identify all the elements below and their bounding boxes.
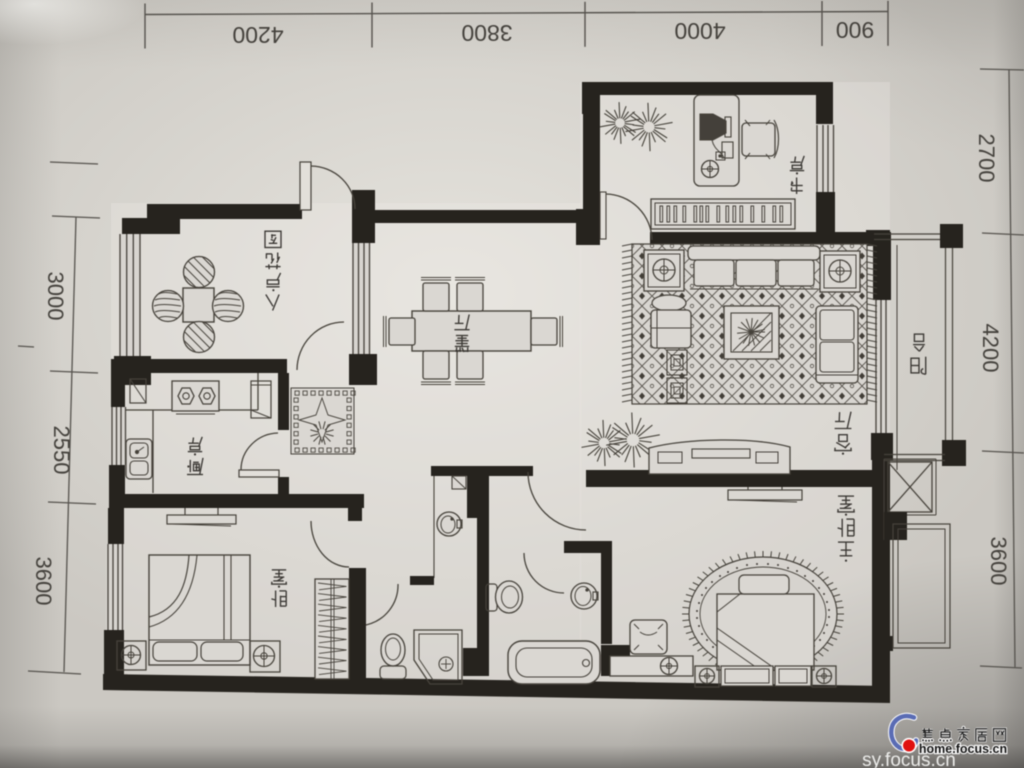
svg-text:sy.focus.cn: sy.focus.cn	[862, 750, 956, 768]
svg-text:2700: 2700	[974, 134, 999, 183]
svg-text:3800: 3800	[461, 20, 512, 46]
svg-text:3600: 3600	[31, 557, 56, 606]
svg-text:4000: 4000	[674, 18, 725, 44]
svg-text:4200: 4200	[232, 22, 283, 48]
svg-text:3600: 3600	[986, 537, 1011, 586]
svg-text:4200: 4200	[978, 324, 1003, 373]
svg-text:900: 900	[836, 17, 874, 43]
svg-text:3000: 3000	[43, 272, 68, 321]
svg-text:2550: 2550	[49, 426, 74, 475]
